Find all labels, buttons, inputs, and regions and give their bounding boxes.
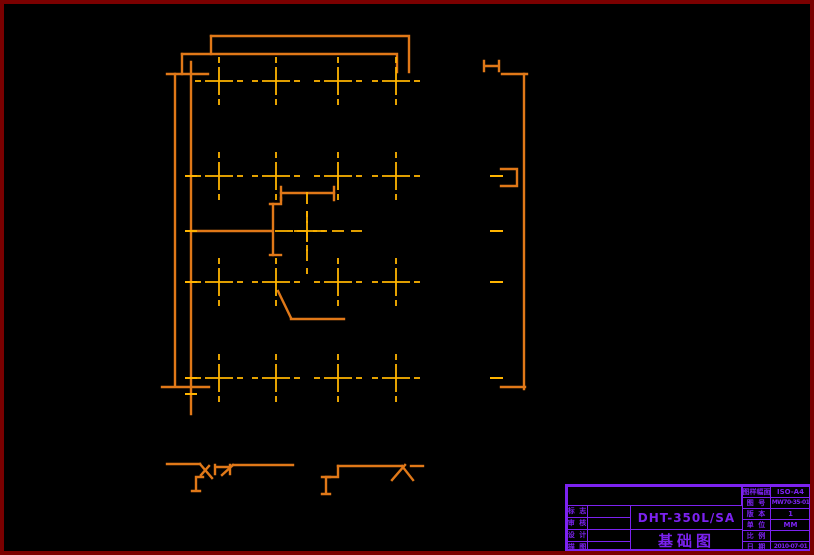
titleblock-date-label: 日 期 (742, 541, 771, 553)
drawing-sheet: 标 志 审 核 设 计 描 图 DHT-350L/SA 基础图 图样幅面 图 号… (0, 0, 814, 555)
titleblock-empty-cell (567, 486, 742, 506)
titleblock-date-value: 2010-07-01 (770, 541, 811, 553)
titleblock-sign-cell (587, 541, 631, 553)
section-detail-right (322, 465, 423, 494)
plan-centermarks (185, 57, 503, 402)
title-block: 标 志 审 核 设 计 描 图 DHT-350L/SA 基础图 图样幅面 图 号… (565, 484, 811, 551)
titleblock-model: DHT-350L/SA (630, 505, 743, 530)
foundation-drawing-canvas (4, 4, 814, 555)
titleblock-drawing-title: 基础图 (630, 529, 743, 553)
section-detail-left (167, 464, 293, 491)
titleblock-left-label-4: 描 图 (567, 541, 588, 553)
foundation-plan-outline (162, 36, 527, 414)
plan-centerlines (275, 192, 362, 274)
